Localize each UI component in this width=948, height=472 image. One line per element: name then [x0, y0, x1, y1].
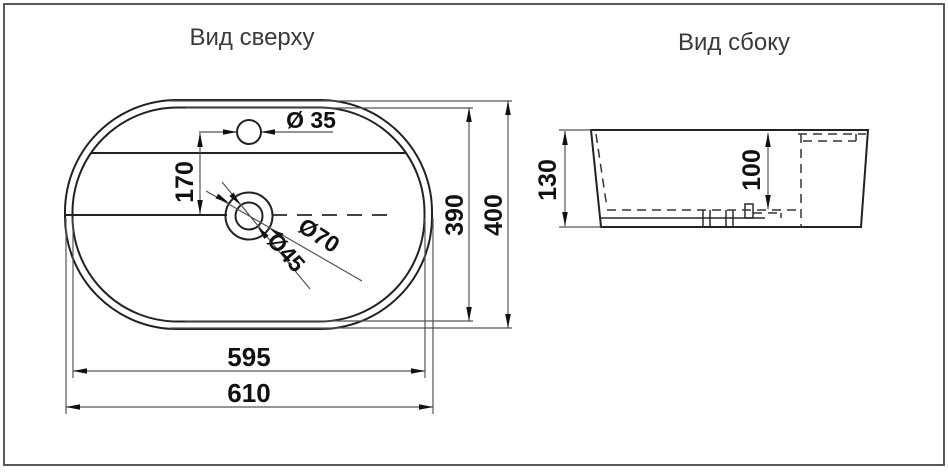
- dim-label-595: 595: [227, 342, 270, 372]
- arrowhead: [197, 133, 203, 147]
- arrowhead: [419, 404, 433, 410]
- dim-130: 130: [534, 130, 601, 227]
- dim-label-610: 610: [227, 378, 270, 408]
- faucet-hole: [237, 120, 261, 144]
- dim-label-faucet: Ø 35: [286, 107, 336, 133]
- arrowhead: [562, 131, 568, 145]
- sheet-border: [4, 4, 944, 465]
- dim-label-100: 100: [738, 149, 766, 191]
- arrowhead: [466, 307, 472, 321]
- arrowhead: [66, 404, 80, 410]
- arrowhead: [216, 194, 230, 203]
- dim-label-400: 400: [480, 194, 508, 236]
- side-view-title: Вид сбоку: [678, 29, 790, 56]
- arrowhead: [261, 129, 275, 134]
- dim-label-390: 390: [441, 194, 469, 236]
- dim-595: 595: [73, 218, 425, 378]
- technical-drawing: Вид сверху Вид сбоку Ø 35 170 Ø70: [0, 0, 948, 472]
- drawing-sheet: Вид сверху Вид сбоку Ø 35 170 Ø70: [0, 0, 948, 472]
- arrowhead: [765, 195, 771, 209]
- arrowhead: [562, 212, 568, 226]
- arrowhead: [505, 314, 511, 328]
- basin-side-view: [591, 130, 868, 227]
- dim-faucet-hole: Ø 35: [199, 107, 336, 135]
- basin-side-profile: [591, 130, 868, 227]
- arrowhead: [223, 129, 237, 134]
- top-view-title: Вид сверху: [190, 24, 315, 51]
- dim-label-130: 130: [534, 159, 562, 201]
- arrowhead: [505, 101, 511, 115]
- drain-boss: [745, 204, 753, 218]
- arrowhead: [411, 368, 425, 374]
- arrowhead: [73, 368, 87, 374]
- dim-100: 100: [738, 133, 771, 209]
- dim-610: 610: [66, 218, 433, 414]
- arrowhead: [765, 133, 771, 147]
- dim-label-170: 170: [171, 161, 199, 203]
- arrowhead: [466, 108, 472, 122]
- dim-170: 170: [171, 133, 203, 214]
